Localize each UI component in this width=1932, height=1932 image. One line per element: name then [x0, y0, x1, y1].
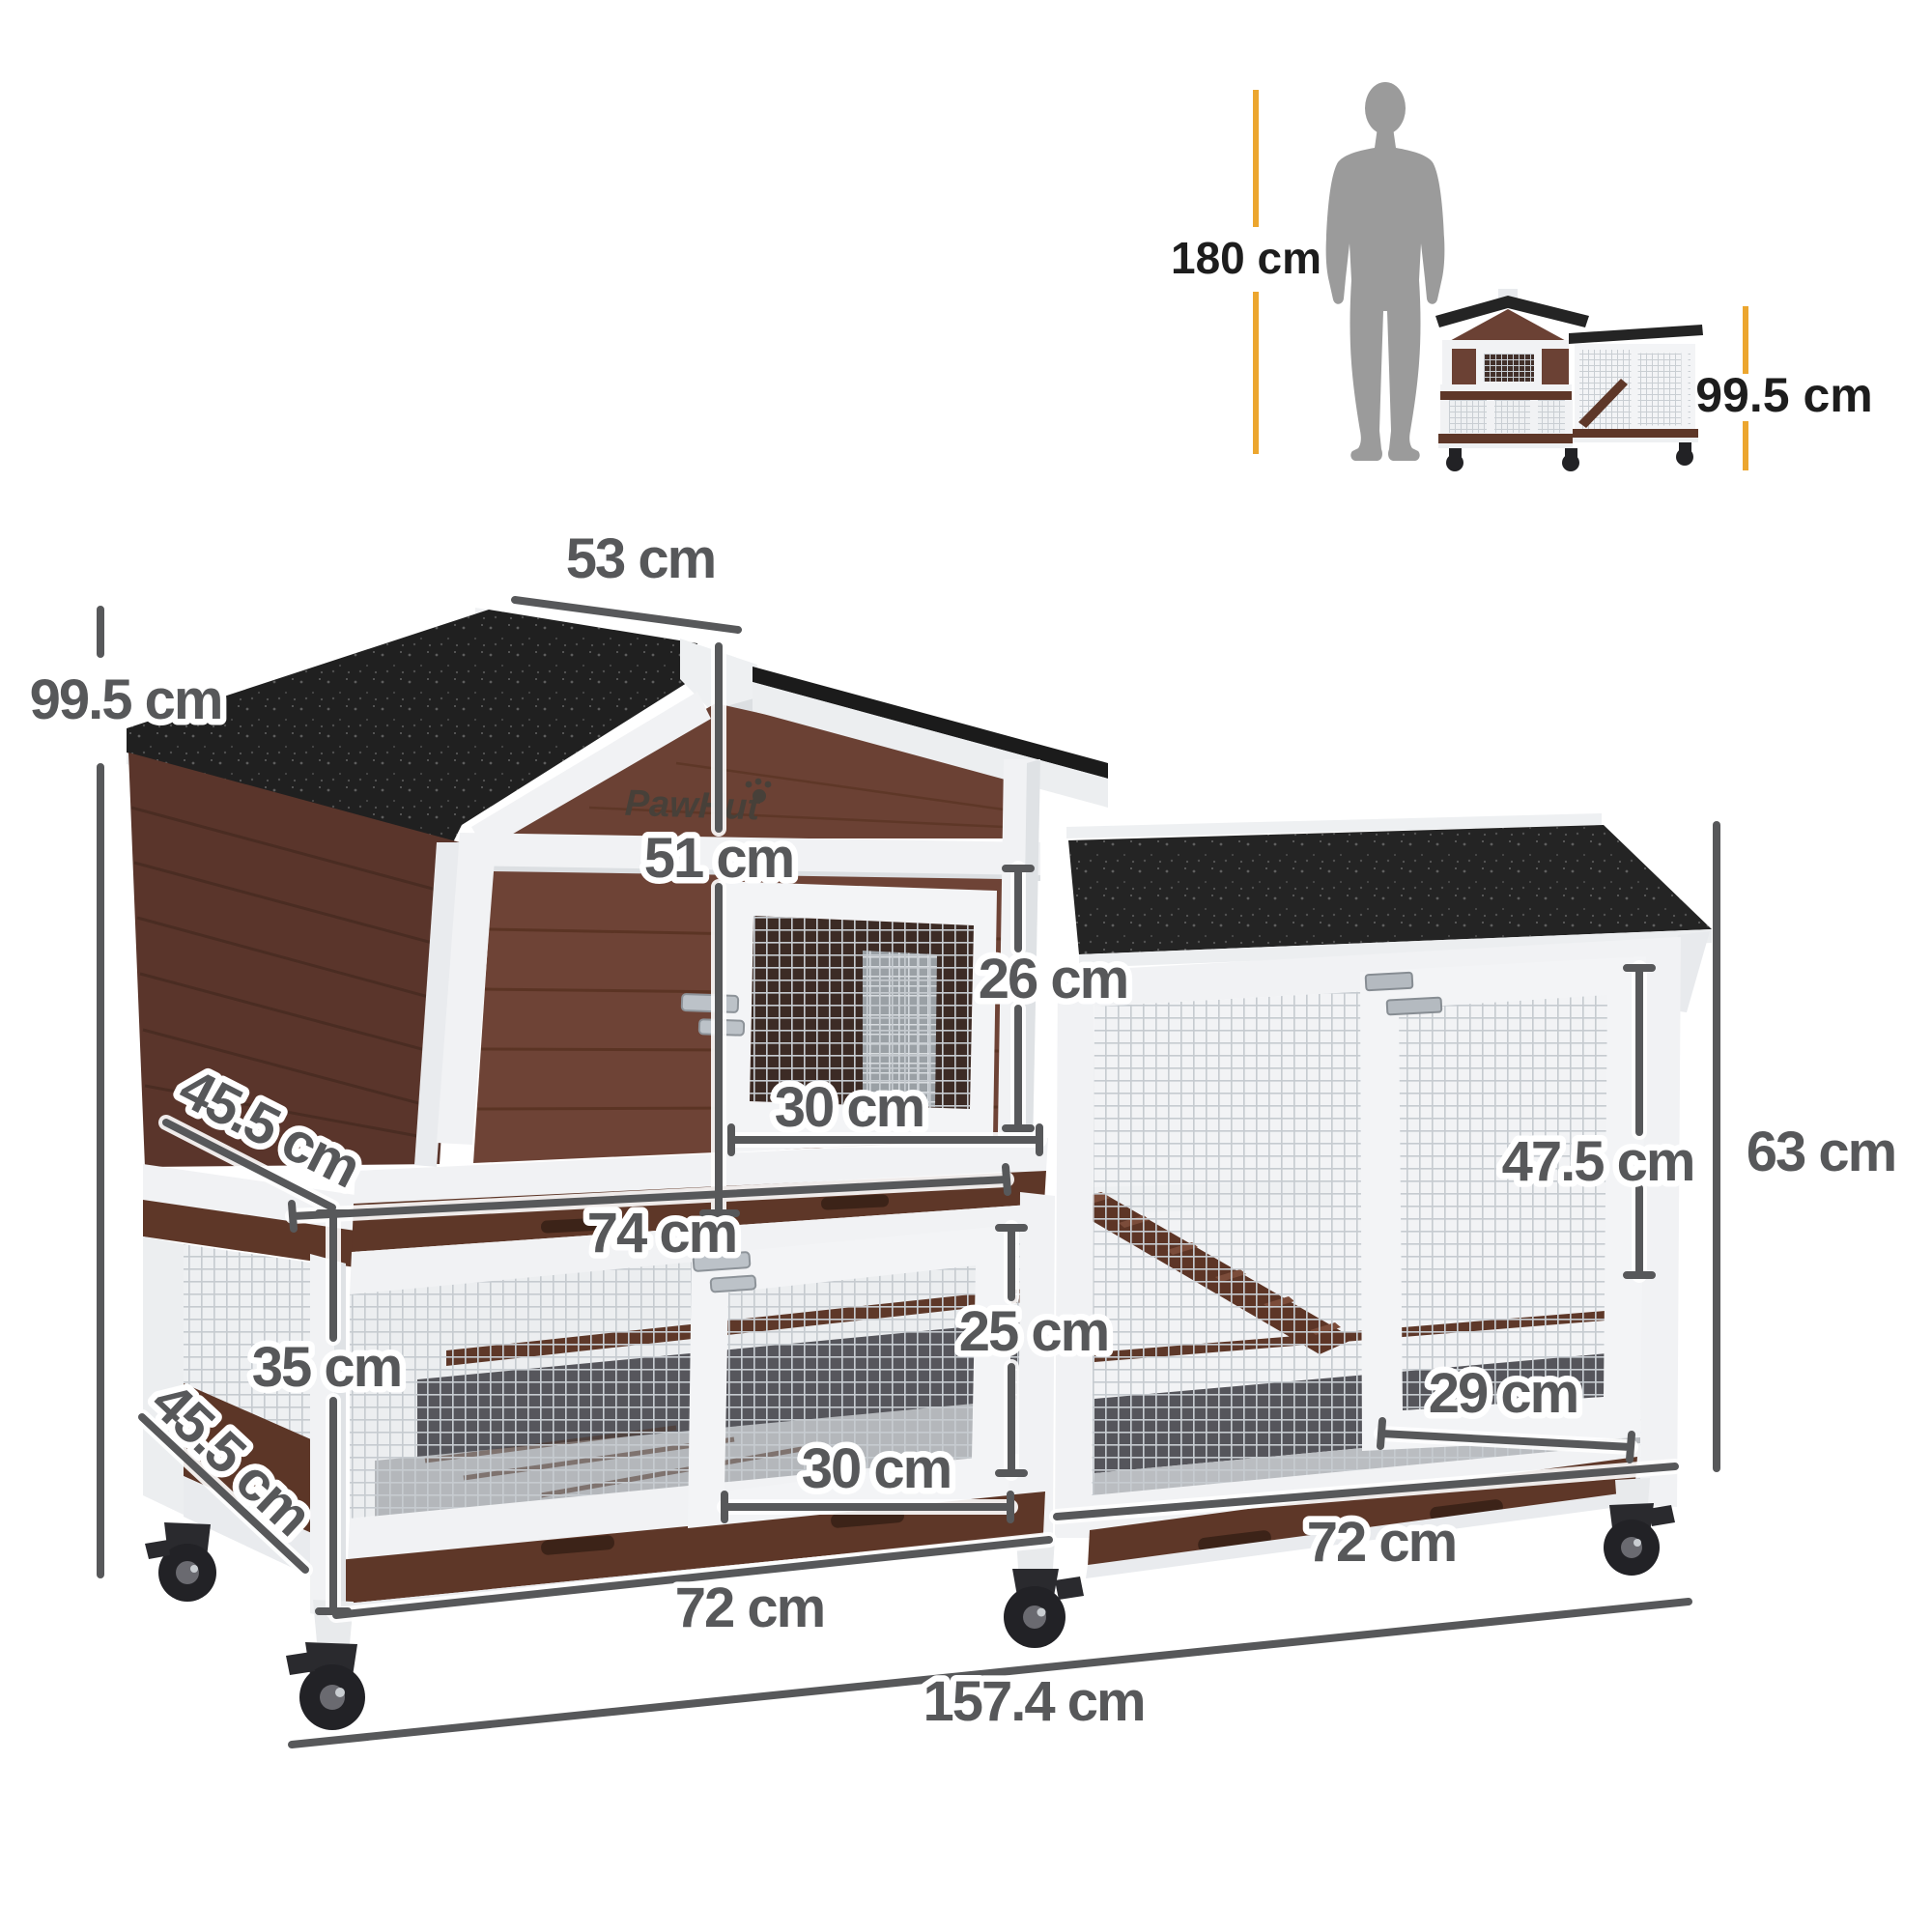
svg-text:99.5 cm: 99.5 cm: [30, 668, 222, 731]
svg-text:PawHut: PawHut: [624, 783, 761, 829]
svg-text:99.5 cm: 99.5 cm: [1695, 368, 1872, 422]
svg-text:157.4 cm: 157.4 cm: [923, 1670, 1144, 1733]
svg-text:63 cm: 63 cm: [1747, 1121, 1895, 1183]
svg-text:47.5 cm: 47.5 cm: [1502, 1130, 1694, 1193]
svg-text:74 cm: 74 cm: [587, 1202, 736, 1264]
svg-text:26 cm: 26 cm: [979, 948, 1127, 1010]
svg-text:51 cm: 51 cm: [644, 827, 793, 890]
svg-text:25 cm: 25 cm: [959, 1300, 1108, 1363]
svg-text:72 cm: 72 cm: [1307, 1511, 1456, 1574]
svg-text:30 cm: 30 cm: [775, 1076, 923, 1139]
svg-text:72 cm: 72 cm: [675, 1577, 824, 1639]
svg-text:30 cm: 30 cm: [802, 1437, 951, 1500]
svg-text:35 cm: 35 cm: [252, 1336, 401, 1399]
svg-text:53 cm: 53 cm: [566, 527, 715, 590]
svg-text:180 cm: 180 cm: [1171, 233, 1321, 283]
svg-text:29 cm: 29 cm: [1429, 1362, 1577, 1425]
